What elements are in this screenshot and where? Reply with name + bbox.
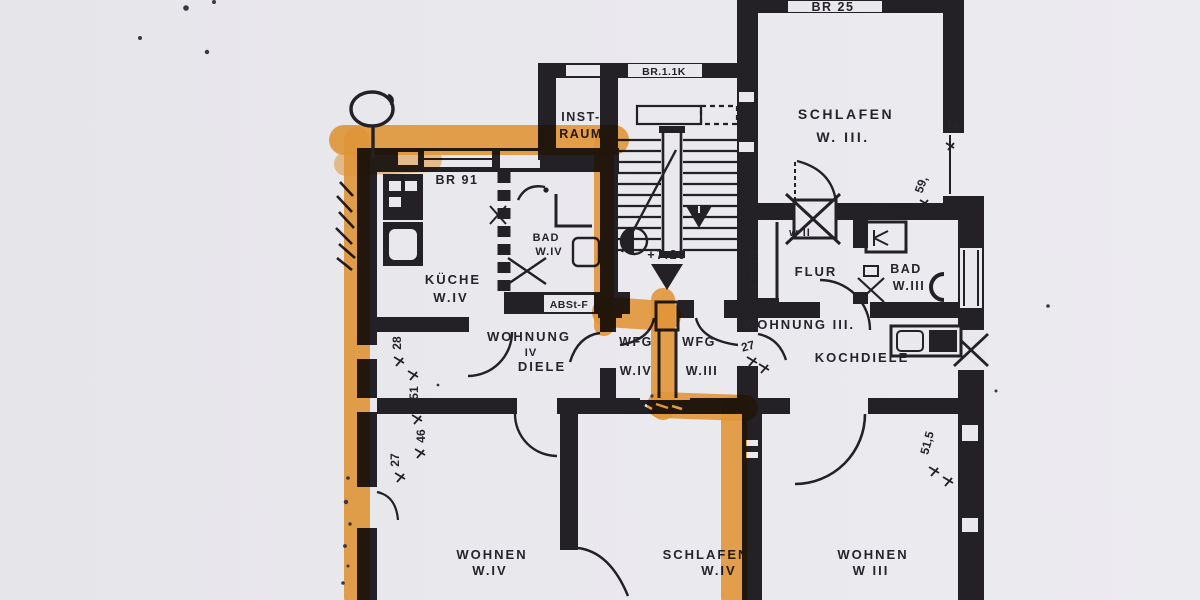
basin-w3-tap	[874, 230, 888, 246]
level-triangle-icon	[651, 264, 683, 290]
room-wfg3-name: WFG	[682, 335, 716, 349]
shower-head-icon	[543, 187, 548, 192]
door-arc-wfg3	[758, 334, 786, 360]
room-abstfl: ABSt-FL	[748, 239, 760, 290]
floorplan-svg: BR 25 BR.1.1K INST- RAUM SCHLAFEN W. III…	[0, 0, 1200, 600]
room-diele-sub: DIELE	[518, 359, 566, 374]
room-bad-w3-name: BAD	[890, 262, 922, 276]
room-flur-name: FLUR	[795, 264, 838, 279]
sink-c-icon	[931, 274, 944, 300]
cistern-w3	[864, 266, 878, 276]
room-wfg4-unit: W.IV	[620, 364, 652, 378]
room-wohnen-w3-name: WOHNEN	[837, 547, 908, 562]
door-arc-schlafen-w4	[578, 548, 628, 596]
door-arc-diele	[570, 333, 600, 362]
dim-28: 28	[390, 336, 404, 350]
door-arc-wohnen-w4	[515, 414, 557, 456]
room-bad-w4-name: BAD	[533, 232, 560, 244]
dim-59: 59,	[912, 174, 931, 194]
window-mark-br11k: BR.1.1K	[642, 66, 686, 78]
dim-515: 51,5	[917, 430, 937, 456]
dim-16: 16	[946, 119, 960, 133]
toilet-cross-icon	[508, 258, 546, 284]
room-wohnung3: WOHNUNG III.	[743, 317, 855, 332]
basin-w3	[866, 222, 906, 252]
room-abstf: ABSt-F	[550, 299, 589, 311]
labels-layer: BR 25 BR.1.1K INST- RAUM SCHLAFEN W. III…	[388, 0, 960, 578]
room-diele-numeral: IV	[525, 347, 537, 359]
window-mark-br25: BR 25	[812, 0, 855, 14]
door-arc-left-wall	[377, 492, 398, 520]
door-arc-wohnen-w3	[795, 414, 865, 484]
pen-circle-icon	[351, 92, 393, 126]
room-wohnen-w4-unit: W.IV	[472, 563, 507, 578]
stair-opening	[637, 106, 701, 124]
room-wohnen-w3-unit: W III	[853, 563, 890, 578]
room-schlafen-w3-unit: W. III.	[816, 129, 869, 145]
floorplan-scan: BR 25 BR.1.1K INST- RAUM SCHLAFEN W. III…	[0, 0, 1200, 600]
toilet-w3-icon	[858, 278, 884, 302]
room-inst-line1: INST-	[561, 110, 600, 124]
window-mark-br91: BR 91	[436, 173, 479, 187]
dim-46: 46	[414, 429, 428, 443]
room-wfg4-name: WFG	[619, 335, 653, 349]
dim-27-left: 27	[388, 453, 402, 467]
tub-edge	[556, 194, 592, 226]
room-wfg3-unit: W.III	[686, 364, 719, 378]
room-kochdiele: KOCHDIELE	[815, 350, 910, 365]
room-diele-name: WOHNUNG	[487, 329, 571, 344]
shower-icon	[518, 186, 545, 200]
room-wohnen-w4-name: WOHNEN	[456, 547, 527, 562]
room-kueche-name: KÜCHE	[425, 272, 481, 287]
room-bad-w3-unit: W.III	[893, 279, 926, 293]
room-schlafen-w3-name: SCHLAFEN	[798, 106, 894, 122]
dim-51: 51	[407, 386, 421, 400]
dim-27-mid: 27	[740, 338, 757, 355]
room-flur-unit: w II	[788, 227, 811, 239]
room-kueche-unit: W.IV	[433, 290, 468, 305]
door-arc-schlafen-w3	[797, 161, 836, 202]
level-mark: +7.20	[647, 248, 686, 262]
room-bad-w4-unit: W.IV	[535, 246, 562, 258]
